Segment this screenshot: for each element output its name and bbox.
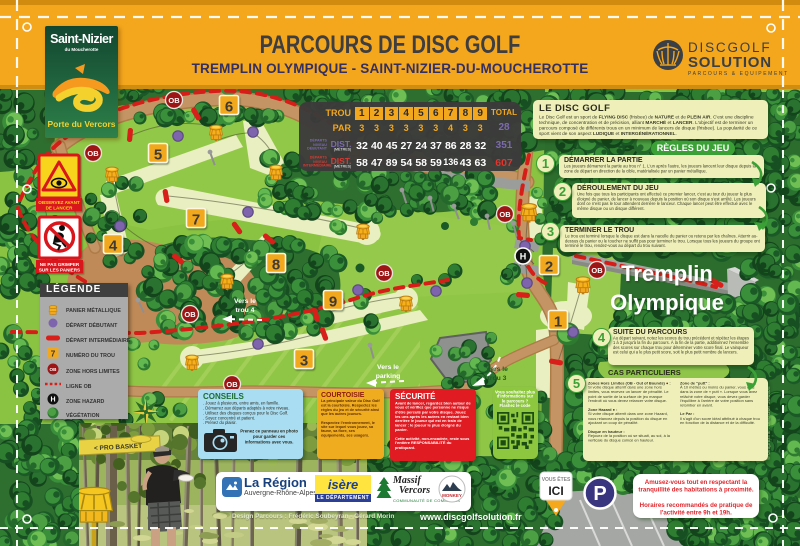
svg-text:Olympique: Olympique (610, 290, 724, 315)
svg-text:2: 2 (545, 258, 553, 275)
svg-text:Vers le: Vers le (377, 364, 399, 371)
svg-text:H: H (520, 251, 527, 261)
svg-text:OB: OB (226, 380, 238, 389)
svg-text:Vers le: Vers le (234, 298, 256, 305)
svg-text:OB: OB (499, 210, 511, 219)
svg-text:OB: OB (168, 96, 180, 105)
svg-text:4: 4 (109, 237, 118, 254)
svg-text:PARCOURS & EQUIPEMENT: PARCOURS & EQUIPEMENT (688, 71, 789, 77)
svg-text:ICI: ICI (548, 484, 563, 498)
svg-text:OB: OB (87, 149, 99, 158)
svg-text:3: 3 (300, 352, 308, 369)
svg-text:trou 4: trou 4 (236, 307, 255, 314)
svg-text:NE PAS GRIMPER: NE PAS GRIMPER (40, 262, 80, 267)
svg-text:Tremplin: Tremplin (621, 261, 713, 286)
svg-text:7: 7 (192, 211, 200, 228)
svg-text:5: 5 (154, 146, 162, 163)
svg-text:OBSERVEZ AVANT: OBSERVEZ AVANT (38, 200, 80, 205)
svg-text:MONKEY: MONKEY (442, 493, 462, 498)
svg-text:OB: OB (50, 367, 58, 372)
svg-text:8: 8 (272, 256, 280, 273)
svg-text:OB: OB (184, 310, 196, 319)
svg-text:SUR LES PANIERS: SUR LES PANIERS (39, 268, 80, 273)
svg-text:6: 6 (225, 98, 233, 115)
svg-text:DISCGOLF: DISCGOLF (688, 40, 771, 55)
svg-text:VOUS ÊTES: VOUS ÊTES (542, 475, 571, 483)
svg-text:parking: parking (376, 373, 401, 380)
svg-text:OB: OB (378, 269, 390, 278)
svg-text:H: H (50, 397, 55, 404)
svg-text:Vers le: Vers le (486, 366, 508, 373)
svg-text:OB: OB (591, 266, 603, 275)
svg-text:DE LANCER: DE LANCER (46, 206, 73, 211)
svg-text:P: P (593, 483, 606, 505)
svg-text:trou 3: trou 3 (488, 375, 507, 382)
svg-text:9: 9 (329, 293, 337, 310)
svg-text:1: 1 (554, 313, 562, 330)
svg-text:7: 7 (51, 349, 56, 359)
svg-text:SOLUTION: SOLUTION (688, 54, 772, 71)
